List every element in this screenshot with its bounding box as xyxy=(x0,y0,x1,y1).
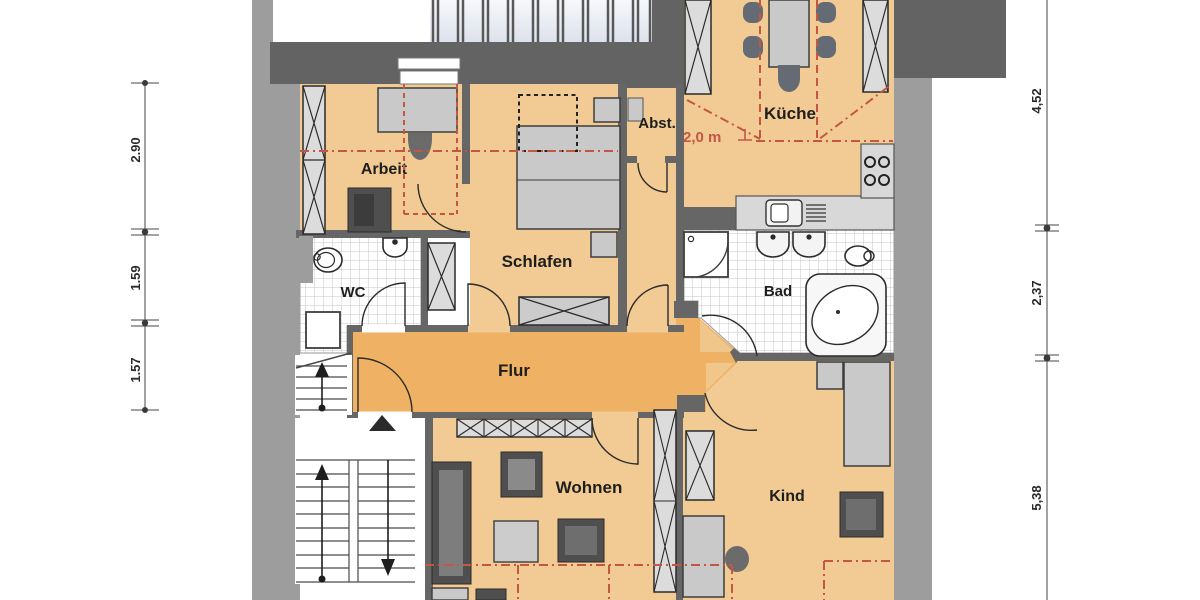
svg-text:Abst.: Abst. xyxy=(638,115,676,132)
svg-text:Kind: Kind xyxy=(769,488,805,505)
svg-text:1.57: 1.57 xyxy=(128,357,143,382)
svg-text:Schlafen: Schlafen xyxy=(502,252,573,271)
svg-text:2.90: 2.90 xyxy=(128,137,143,162)
svg-text:1.59: 1.59 xyxy=(128,265,143,290)
svg-text:4,52: 4,52 xyxy=(1029,88,1044,113)
svg-text:5,38: 5,38 xyxy=(1029,485,1044,510)
svg-text:WC: WC xyxy=(341,284,366,301)
svg-text:Arbeit: Arbeit xyxy=(361,161,408,178)
svg-text:2,0 m: 2,0 m xyxy=(683,129,721,146)
svg-text:Küche: Küche xyxy=(764,104,816,123)
svg-text:Wohnen: Wohnen xyxy=(556,478,623,497)
svg-text:2,37: 2,37 xyxy=(1029,280,1044,305)
svg-text:Bad: Bad xyxy=(764,283,792,300)
svg-text:Flur: Flur xyxy=(498,361,530,380)
